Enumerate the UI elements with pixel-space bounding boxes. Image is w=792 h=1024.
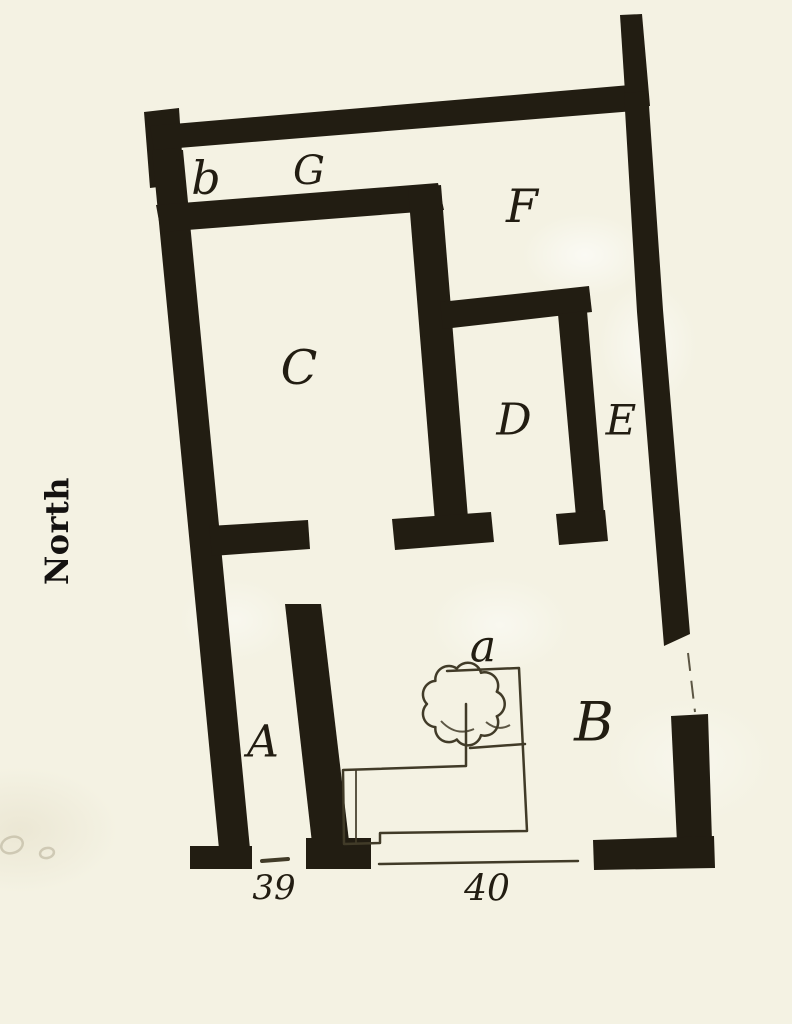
print-ghost-mark-1 bbox=[0, 834, 25, 856]
wall-southeast-foot bbox=[593, 836, 715, 870]
wall-divider-south-base bbox=[392, 512, 494, 550]
room-label-c: C bbox=[281, 340, 318, 396]
wall-east-upper bbox=[624, 91, 690, 646]
north-orientation-label: North bbox=[38, 477, 76, 585]
entrance-number-39: 39 bbox=[252, 868, 295, 908]
wall-north bbox=[150, 84, 646, 150]
feature-label-a-counter: a bbox=[470, 622, 496, 673]
wall-room-d-east-base bbox=[556, 510, 608, 545]
room-label-a-corridor: A bbox=[243, 717, 279, 768]
room-label-b: b bbox=[191, 151, 220, 205]
dolium-inner-curve-left bbox=[441, 721, 474, 732]
wall-west-body bbox=[152, 150, 250, 849]
scanned-plan-page: b G F C D E A B a 39 40 North bbox=[0, 0, 792, 1024]
dolium-scalloped-rim bbox=[423, 663, 505, 746]
counter-separator-line bbox=[470, 744, 525, 748]
room-label-f: F bbox=[505, 179, 540, 233]
room-label-b-shop: B bbox=[573, 691, 614, 754]
entrance-number-40: 40 bbox=[463, 869, 510, 910]
room-label-e: E bbox=[605, 396, 637, 445]
floor-plan-drawing: b G F C D E A B a 39 40 North bbox=[0, 0, 792, 1024]
room-label-d: D bbox=[495, 395, 531, 446]
wall-room-c-south-stub bbox=[209, 520, 310, 556]
wall-west-foot bbox=[190, 846, 252, 869]
print-ghost-mark-2 bbox=[39, 847, 55, 860]
entrance-39-tick bbox=[262, 859, 288, 861]
wall-room-d-east bbox=[558, 311, 604, 517]
wall-divider-c-f bbox=[408, 185, 468, 522]
wall-east-lower bbox=[671, 714, 712, 843]
entrance-40-line bbox=[379, 861, 578, 864]
room-label-g: G bbox=[293, 148, 325, 194]
east-doorway-threshold-line bbox=[688, 653, 695, 712]
wall-corridor-a-body bbox=[285, 604, 349, 843]
